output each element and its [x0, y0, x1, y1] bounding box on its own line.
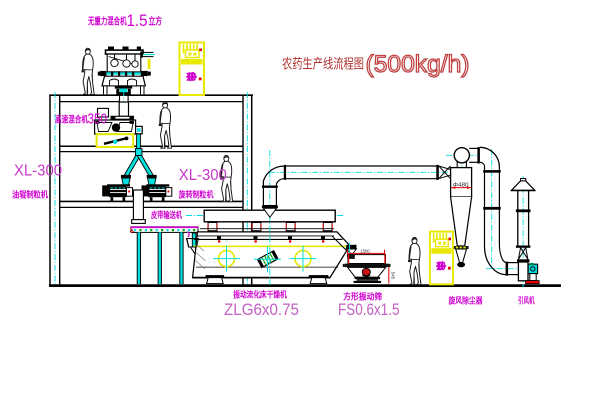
svg-text:XL-300: XL-300 [14, 162, 62, 179]
svg-text:350: 350 [88, 111, 108, 128]
svg-text:振动流化床干燥机: 振动流化床干燥机 [233, 289, 287, 299]
svg-text:XL-300: XL-300 [179, 167, 227, 184]
svg-text:旋风除尘器: 旋风除尘器 [448, 296, 483, 306]
svg-text:农药生产线流程图: 农药生产线流程图 [282, 56, 364, 71]
svg-text:ZLG6x0.75: ZLG6x0.75 [224, 301, 299, 319]
svg-text:1500: 1500 [360, 249, 370, 254]
svg-text:油辊制粒机: 油辊制粒机 [12, 190, 49, 200]
svg-text:立方: 立方 [149, 16, 163, 28]
svg-text:1.5: 1.5 [127, 12, 148, 30]
svg-text:Φ480: Φ480 [453, 182, 469, 188]
svg-text:(500kg/h): (500kg/h) [366, 51, 470, 78]
svg-text:545: 545 [390, 272, 395, 280]
svg-text:旋转制粒机: 旋转制粒机 [178, 189, 214, 199]
svg-text:皮带输送机: 皮带输送机 [150, 210, 182, 220]
svg-text:无重力混合机: 无重力混合机 [87, 16, 127, 28]
svg-text:FS0.6x1.5: FS0.6x1.5 [338, 301, 400, 319]
svg-text:高速混合机: 高速混合机 [55, 113, 88, 124]
svg-text:引风机: 引风机 [518, 296, 535, 306]
